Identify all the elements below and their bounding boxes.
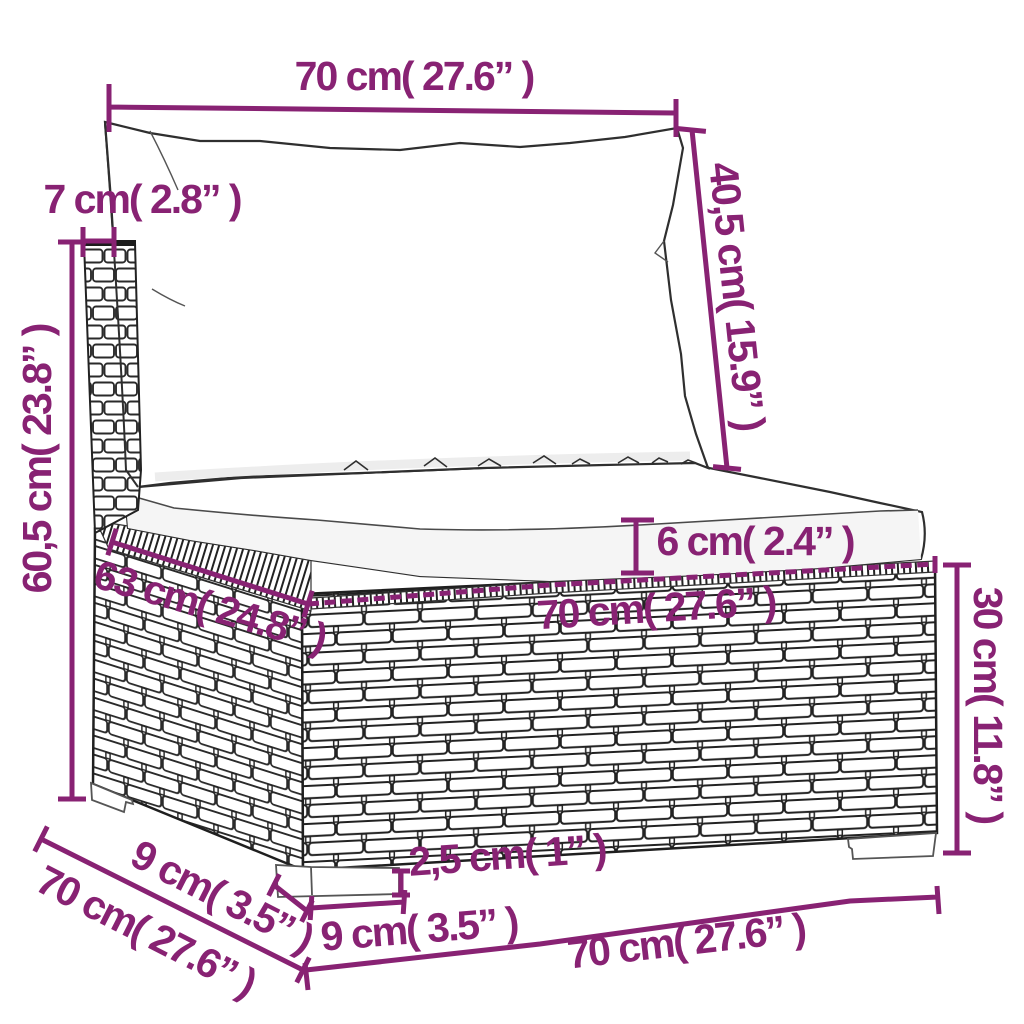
svg-text:6 cm( 2.4” ): 6 cm( 2.4” ) [656,518,853,564]
svg-text:30 cm( 11.8” ): 30 cm( 11.8” ) [965,587,1011,824]
svg-text:60,5 cm( 23.8” ): 60,5 cm( 23.8” ) [14,324,60,593]
svg-text:7 cm( 2.8” ): 7 cm( 2.8” ) [43,176,240,222]
svg-text:70 cm( 27.6” ): 70 cm( 27.6” ) [295,53,534,99]
